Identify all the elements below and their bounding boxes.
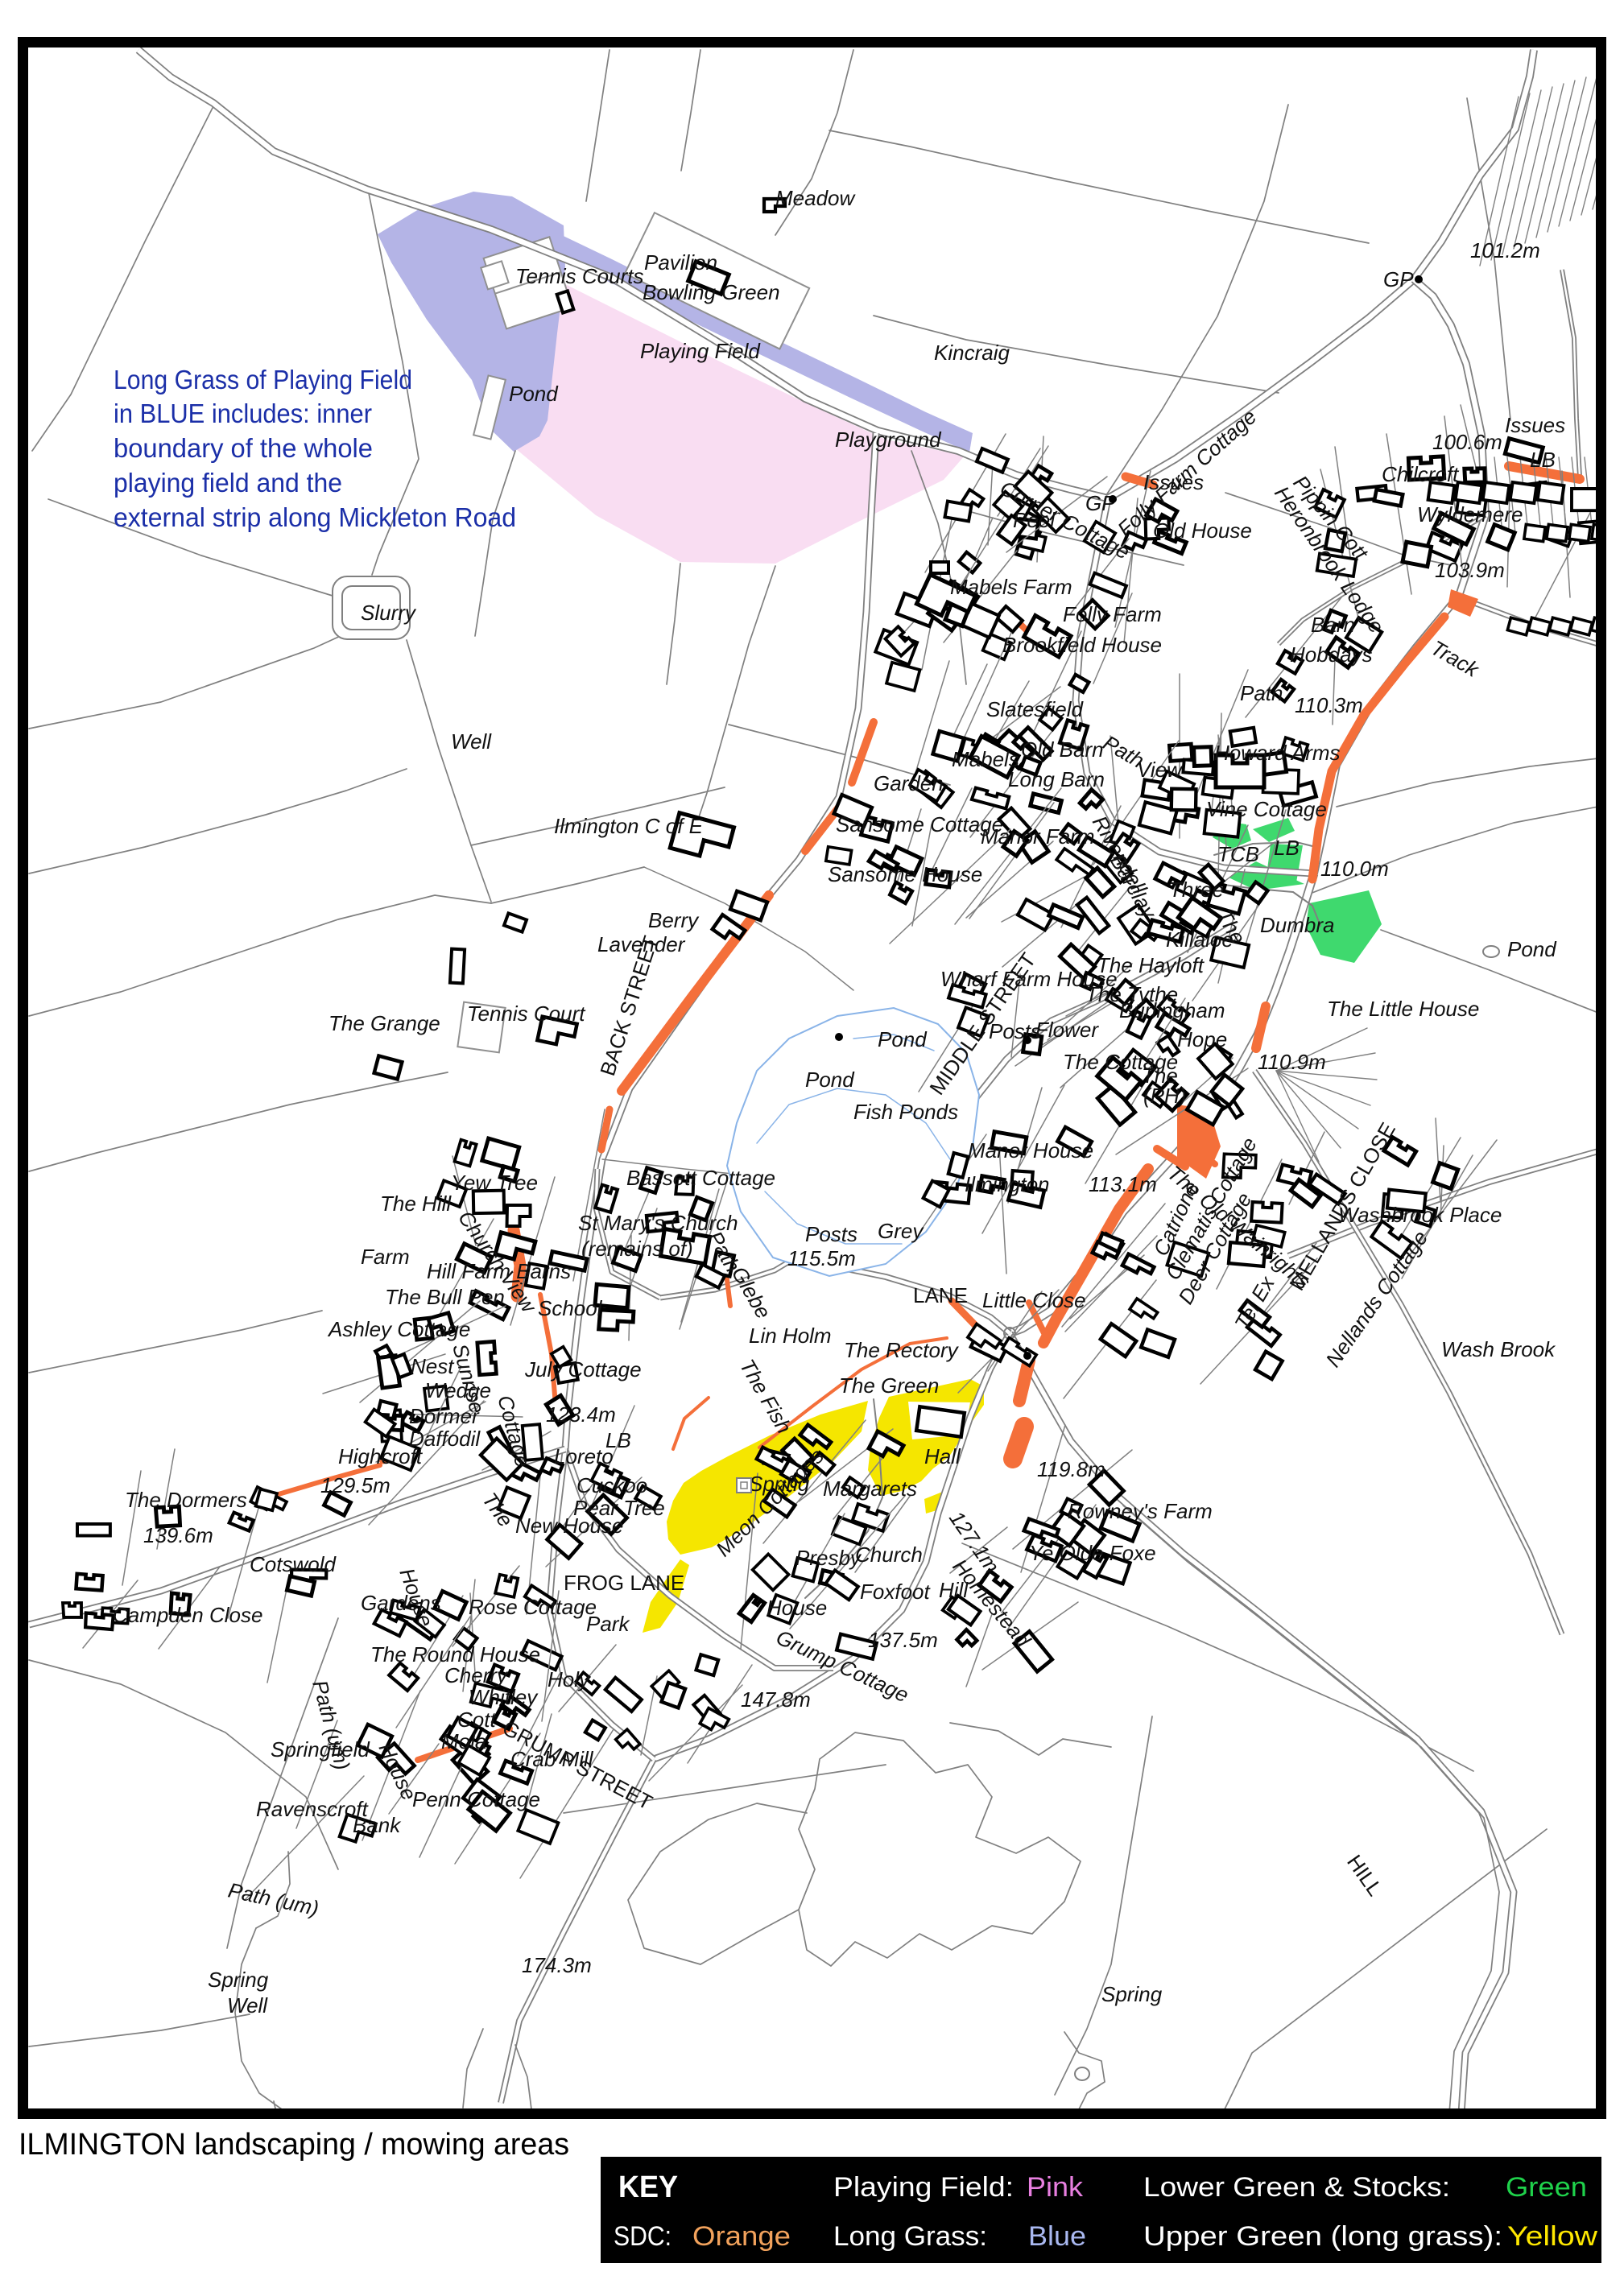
svg-text:The Rectory: The Rectory [844,1338,960,1362]
svg-text:Folly Farm: Folly Farm [1063,602,1162,626]
svg-text:Foxfoot: Foxfoot [860,1580,931,1604]
svg-text:School: School [538,1296,603,1320]
svg-text:129.5m: 129.5m [320,1473,391,1497]
svg-text:Hill: Hill [939,1578,969,1602]
svg-text:Margarets: Margarets [823,1476,917,1501]
svg-text:Wash Brook: Wash Brook [1441,1337,1556,1361]
svg-text:110.0m: 110.0m [1320,857,1389,881]
svg-text:in BLUE includes: inner: in BLUE includes: inner [114,399,372,428]
svg-text:Garden: Garden [874,771,944,795]
svg-text:FROG LANE: FROG LANE [564,1571,684,1595]
svg-text:Peel: Peel [1013,508,1056,532]
svg-text:Issues: Issues [1505,413,1565,437]
svg-text:Playground: Playground [835,427,942,452]
svg-text:119.8m: 119.8m [1037,1457,1105,1481]
svg-text:The Bull Pen: The Bull Pen [385,1285,505,1309]
svg-text:113.1m: 113.1m [1089,1172,1157,1196]
svg-text:Ilmington C of E: Ilmington C of E [554,814,704,838]
svg-text:Cuckoo: Cuckoo [576,1473,647,1497]
svg-text:View: View [1137,758,1184,782]
svg-text:Mola: Mola [441,1729,486,1753]
svg-text:The Grange: The Grange [329,1011,440,1035]
svg-text:Yew Tree: Yew Tree [451,1171,538,1195]
svg-text:Pond: Pond [805,1068,855,1092]
svg-text:Barn: Barn [1311,613,1355,637]
svg-text:Lower Green & Stocks:: Lower Green & Stocks: [1143,2172,1450,2203]
svg-text:LANE: LANE [913,1283,968,1307]
svg-text:Burlingham: Burlingham [1119,998,1225,1022]
svg-text:Killaloe: Killaloe [1166,927,1233,952]
svg-text:Manor Farm: Manor Farm [981,824,1095,849]
svg-text:Old House: Old House [1153,518,1252,543]
svg-text:Mabels Farm: Mabels Farm [950,575,1072,599]
svg-text:Campden Close: Campden Close [113,1603,262,1627]
svg-text:Dormer: Dormer [409,1404,480,1428]
svg-text:Yellow: Yellow [1507,2221,1598,2252]
svg-text:123.4m: 123.4m [546,1402,616,1427]
svg-text:Chilcroft: Chilcroft [1382,462,1460,486]
svg-text:Hope: Hope [1177,1027,1227,1051]
svg-text:Upper Green (long grass):: Upper Green (long grass): [1143,2221,1502,2252]
svg-text:Whitley: Whitley [469,1685,539,1709]
svg-text:Hill Farm Barns: Hill Farm Barns [427,1259,571,1283]
svg-text:Ashley Cottage: Ashley Cottage [327,1317,470,1341]
svg-text:Meadow: Meadow [775,186,856,210]
svg-text:Rose Cottage: Rose Cottage [469,1595,597,1619]
svg-text:Manor House: Manor House [968,1138,1093,1163]
svg-text:Pond: Pond [509,382,559,406]
svg-text:St Mary's Church: St Mary's Church [578,1211,738,1235]
svg-text:Fish Ponds: Fish Ponds [853,1100,958,1124]
svg-text:LB: LB [605,1428,631,1452]
svg-text:Ye Olde Foxe: Ye Olde Foxe [1029,1541,1156,1565]
svg-text:Brookfield House: Brookfield House [1002,633,1162,657]
svg-text:Kincraig: Kincraig [934,341,1010,365]
svg-text:Penn Cottage: Penn Cottage [412,1787,540,1811]
svg-text:174.3m: 174.3m [522,1953,592,1977]
svg-text:The Hill: The Hill [380,1191,452,1216]
svg-text:Old Barn: Old Barn [1021,737,1104,762]
svg-text:Pond: Pond [878,1027,928,1051]
svg-text:Playing Field:: Playing Field: [833,2172,1014,2203]
svg-text:Loreto: Loreto [554,1444,614,1468]
svg-text:110.3m: 110.3m [1295,693,1363,717]
svg-text:Washbrook Place: Washbrook Place [1338,1203,1502,1227]
svg-text:103.9m: 103.9m [1435,558,1505,582]
svg-text:House: House [767,1596,827,1620]
svg-text:(PH): (PH) [1143,1084,1186,1108]
svg-text:playing field and the: playing field and the [114,468,342,498]
svg-text:Wedge: Wedge [425,1378,491,1402]
svg-text:Spring: Spring [208,1968,269,1992]
svg-text:Orange: Orange [692,2221,791,2252]
svg-text:Bowling Green: Bowling Green [643,280,780,304]
svg-text:110.9m: 110.9m [1258,1050,1326,1074]
svg-text:Howard Arms: Howard Arms [1214,741,1341,765]
svg-text:Lin Holm: Lin Holm [749,1324,832,1348]
svg-text:Well: Well [451,729,492,754]
svg-text:(remains of): (remains of) [581,1237,693,1261]
svg-text:Hall: Hall [924,1444,961,1468]
svg-text:Long Grass:: Long Grass: [833,2221,987,2252]
svg-text:Little Close: Little Close [982,1288,1086,1312]
svg-text:Dumbra: Dumbra [1260,913,1334,937]
svg-text:100.6m: 100.6m [1432,430,1502,454]
svg-text:Farm: Farm [361,1245,410,1269]
svg-text:Well: Well [227,1993,268,2017]
svg-text:Three: Three [1169,878,1224,902]
svg-text:July Cottage: July Cottage [524,1357,642,1381]
svg-text:Long Barn: Long Barn [1008,767,1105,791]
svg-text:Church: Church [855,1543,923,1567]
svg-text:GP: GP [1085,491,1116,515]
svg-text:LB: LB [1274,836,1300,860]
svg-text:ILMINGTON landscaping / mowing: ILMINGTON landscaping / mowing areas [19,2128,569,2162]
svg-text:139.6m: 139.6m [143,1523,213,1547]
svg-text:Sansome House: Sansome House [828,862,982,886]
svg-text:Nest: Nest [411,1354,455,1378]
svg-text:Spring: Spring [1101,1982,1163,2006]
svg-text:Rowney's Farm: Rowney's Farm [1068,1499,1213,1523]
svg-text:Crab Mill: Crab Mill [510,1747,594,1771]
svg-text:Tennis Courts: Tennis Courts [515,264,643,288]
svg-text:GP: GP [1383,267,1414,291]
svg-text:Blue: Blue [1028,2221,1086,2252]
svg-text:external strip along Mickleton: external strip along Mickleton Road [114,502,516,532]
svg-text:147.8m: 147.8m [741,1687,811,1712]
svg-text:boundary of the whole: boundary of the whole [114,433,373,463]
svg-text:Highcroft: Highcroft [338,1444,424,1468]
svg-text:Long Grass of Playing Field: Long Grass of Playing Field [114,365,412,394]
svg-text:Springfield: Springfield [271,1737,370,1761]
svg-text:Slurry: Slurry [361,601,417,625]
svg-text:Tennis Court: Tennis Court [467,1002,586,1026]
svg-text:The Green: The Green [839,1373,939,1398]
svg-text:Cherry: Cherry [444,1663,509,1687]
svg-text:New House: New House [515,1514,623,1538]
svg-text:Flower: Flower [1035,1018,1099,1042]
svg-text:101.2m: 101.2m [1470,238,1540,262]
svg-text:LB: LB [1530,448,1556,472]
svg-text:Gardens: Gardens [361,1591,441,1615]
svg-text:Cotswold: Cotswold [250,1552,337,1576]
svg-text:Bassett Cottage: Bassett Cottage [626,1166,775,1190]
svg-text:Path: Path [1240,681,1283,705]
svg-text:Wyldemere: Wyldemere [1417,502,1523,527]
svg-text:Playing Field: Playing Field [640,339,761,363]
svg-text:Holy: Holy [548,1667,591,1691]
svg-text:137.5m: 137.5m [868,1628,938,1652]
svg-text:Vine Cottage: Vine Cottage [1206,797,1327,821]
svg-text:Posts: Posts [805,1222,857,1246]
svg-text:SDC:: SDC: [614,2221,672,2252]
svg-text:Berry: Berry [648,908,700,932]
svg-text:Presby: Presby [795,1546,862,1570]
svg-text:Sansome Cottage: Sansome Cottage [836,812,1003,836]
svg-text:Pond: Pond [1507,937,1557,961]
svg-text:Grey: Grey [878,1219,924,1243]
svg-text:The Dormers: The Dormers [125,1488,247,1512]
svg-text:Park: Park [586,1612,630,1636]
svg-text:Slatesfield: Slatesfield [986,697,1084,721]
svg-text:Cott: Cott [457,1708,497,1732]
svg-text:Bank: Bank [353,1813,402,1837]
svg-text:The Little House: The Little House [1327,997,1479,1021]
svg-text:Ilmington: Ilmington [965,1172,1050,1196]
svg-text:KEY: KEY [618,2170,678,2204]
svg-text:TCB: TCB [1217,842,1259,866]
svg-text:Hobdays: Hobdays [1290,642,1373,667]
svg-text:Pavilion: Pavilion [644,250,717,275]
svg-text:115.5m: 115.5m [787,1246,856,1270]
svg-text:Pink: Pink [1027,2172,1084,2203]
svg-text:Green: Green [1506,2172,1587,2203]
